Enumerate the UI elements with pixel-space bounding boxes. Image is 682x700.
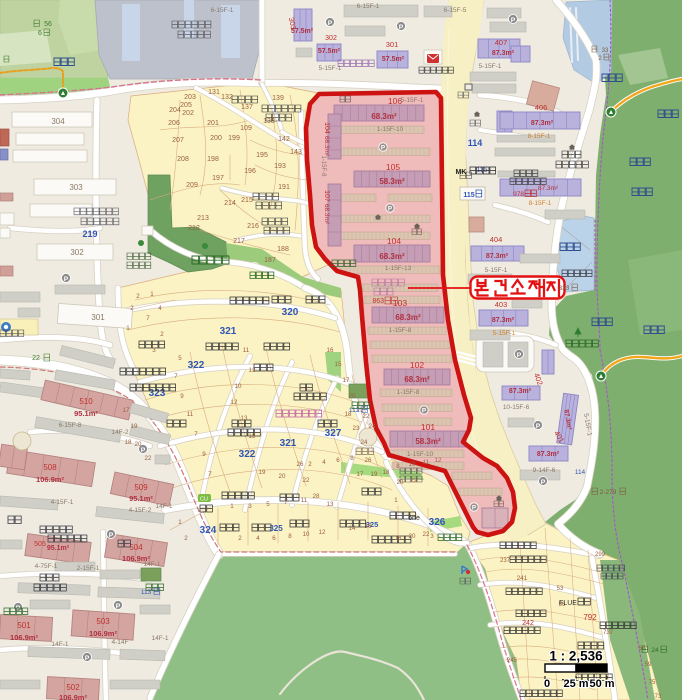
svg-text:324: 324 <box>200 525 217 536</box>
svg-text:87.3m²: 87.3m² <box>486 253 509 260</box>
svg-text:217: 217 <box>233 238 245 245</box>
svg-text:195: 195 <box>256 152 268 159</box>
svg-text:1: 1 <box>178 519 182 526</box>
svg-text:95.1m²: 95.1m² <box>129 494 153 503</box>
svg-text:17: 17 <box>357 471 364 478</box>
svg-text:20: 20 <box>349 393 356 400</box>
svg-text:200: 200 <box>210 135 222 142</box>
svg-text:1: 1 <box>230 503 234 510</box>
svg-text:201: 201 <box>207 120 219 127</box>
svg-text:1-15F-10: 1-15F-10 <box>407 451 434 458</box>
svg-text:7: 7 <box>284 499 288 506</box>
svg-text:322: 322 <box>239 449 256 460</box>
svg-text:106.9m²: 106.9m² <box>10 633 38 642</box>
svg-text:106.9m²: 106.9m² <box>89 629 117 638</box>
svg-text:4: 4 <box>322 459 326 466</box>
svg-text:33: 33 <box>602 48 609 54</box>
svg-text:16: 16 <box>365 523 372 530</box>
svg-text:2-15F-1: 2-15F-1 <box>77 565 100 572</box>
svg-text:26: 26 <box>297 461 304 468</box>
svg-text:one: one <box>408 515 420 522</box>
svg-text:5: 5 <box>266 501 270 508</box>
svg-text:2: 2 <box>184 535 188 542</box>
svg-text:115: 115 <box>463 192 474 199</box>
svg-text:19: 19 <box>131 423 138 430</box>
svg-text:863: 863 <box>372 298 384 305</box>
svg-text:403: 403 <box>495 300 508 309</box>
svg-text:9: 9 <box>180 393 184 400</box>
svg-text:MK: MK <box>456 169 467 176</box>
svg-text:P: P <box>116 603 121 610</box>
svg-text:87.3m²: 87.3m² <box>492 50 515 57</box>
svg-text:8: 8 <box>350 455 354 462</box>
svg-text:209: 209 <box>186 182 198 189</box>
svg-text:137: 137 <box>241 104 253 111</box>
svg-text:102: 102 <box>410 360 424 370</box>
svg-text:18: 18 <box>383 469 390 476</box>
svg-text:15: 15 <box>335 361 342 368</box>
svg-text:510: 510 <box>79 397 93 406</box>
svg-text:2: 2 <box>308 461 312 468</box>
svg-text:191: 191 <box>278 184 290 191</box>
svg-text:197: 197 <box>212 175 224 182</box>
svg-text:301: 301 <box>91 313 105 322</box>
svg-text:19: 19 <box>259 469 266 476</box>
svg-text:333: 333 <box>559 285 570 292</box>
svg-text:P: P <box>472 505 476 512</box>
svg-text:22: 22 <box>32 355 40 362</box>
svg-text:12: 12 <box>435 457 442 464</box>
svg-text:68.3m²: 68.3m² <box>323 204 330 225</box>
svg-text:8-15F-1: 8-15F-1 <box>529 200 552 207</box>
svg-text:213: 213 <box>197 215 209 222</box>
svg-text:P: P <box>399 24 404 31</box>
svg-text:9: 9 <box>202 451 206 458</box>
svg-text:50 m: 50 m <box>589 678 614 690</box>
svg-text:196: 196 <box>244 168 256 175</box>
svg-text:75: 75 <box>649 680 656 686</box>
svg-text:22: 22 <box>423 531 430 538</box>
svg-text:407: 407 <box>495 38 508 47</box>
svg-text:11: 11 <box>187 411 194 418</box>
svg-text:14F-1: 14F-1 <box>52 641 69 648</box>
svg-text:6-15F-5: 6-15F-5 <box>444 7 467 14</box>
svg-text:1-15F-8: 1-15F-8 <box>389 327 412 334</box>
svg-text:25 m: 25 m <box>563 678 588 690</box>
svg-text:214: 214 <box>224 200 236 207</box>
svg-text:P: P <box>141 447 146 454</box>
svg-text:18: 18 <box>395 535 402 542</box>
svg-text:404: 404 <box>490 235 503 244</box>
svg-text:1-15F-10: 1-15F-10 <box>377 126 404 133</box>
svg-text:24: 24 <box>651 647 659 654</box>
svg-text:20: 20 <box>135 441 142 448</box>
svg-text:6-15F-1: 6-15F-1 <box>211 7 234 14</box>
svg-text:P: P <box>541 479 546 486</box>
svg-text:299: 299 <box>595 552 606 558</box>
svg-text:13: 13 <box>249 367 256 374</box>
svg-text:7: 7 <box>146 315 150 322</box>
svg-text:327: 327 <box>325 428 342 439</box>
svg-text:22: 22 <box>363 413 370 420</box>
svg-text:10: 10 <box>235 383 242 390</box>
svg-text:508: 508 <box>43 463 57 472</box>
svg-text:5-15F-1: 5-15F-1 <box>479 63 502 70</box>
svg-text:11: 11 <box>301 497 308 504</box>
svg-text:131: 131 <box>208 89 220 96</box>
svg-text:104: 104 <box>387 236 401 246</box>
svg-text:3: 3 <box>152 347 156 354</box>
svg-text:58.3m²: 58.3m² <box>379 177 405 186</box>
svg-text:737: 737 <box>603 630 614 636</box>
svg-text:P: P <box>328 20 333 27</box>
svg-text:P: P <box>109 532 114 539</box>
svg-text:24: 24 <box>361 439 368 446</box>
svg-text:107: 107 <box>323 190 330 202</box>
svg-text:138: 138 <box>263 118 275 125</box>
svg-text:68.3m²: 68.3m² <box>371 112 397 121</box>
svg-text:188: 188 <box>277 246 289 253</box>
svg-text:501: 501 <box>17 621 31 630</box>
svg-text:95.1m²: 95.1m² <box>47 545 70 552</box>
svg-text:1: 1 <box>394 497 398 504</box>
svg-text:207: 207 <box>172 137 184 144</box>
svg-text:57.5m²: 57.5m² <box>382 56 405 63</box>
svg-text:13: 13 <box>327 501 334 508</box>
svg-text:4-15F-2: 4-15F-2 <box>129 507 152 514</box>
svg-text:68.3m²: 68.3m² <box>404 375 430 384</box>
svg-text:5: 5 <box>178 355 182 362</box>
svg-text:P: P <box>64 276 69 283</box>
svg-text:6: 6 <box>272 535 276 542</box>
svg-text:20: 20 <box>279 473 286 480</box>
svg-text:P: P <box>511 17 516 24</box>
svg-text:12: 12 <box>231 399 238 406</box>
svg-text:4: 4 <box>256 535 260 542</box>
svg-text:4-75F-1: 4-75F-1 <box>35 563 58 570</box>
svg-text:303: 303 <box>69 183 83 192</box>
svg-text:87.3m²: 87.3m² <box>537 451 560 458</box>
svg-text:0: 0 <box>544 678 550 690</box>
svg-text:3: 3 <box>248 503 252 510</box>
svg-text:4-14F: 4-14F <box>112 639 129 646</box>
svg-text:101: 101 <box>421 422 435 432</box>
svg-text:24: 24 <box>369 423 376 430</box>
svg-text:7: 7 <box>174 373 178 380</box>
svg-text:P: P <box>536 423 541 430</box>
svg-text:68.3m²: 68.3m² <box>395 313 421 322</box>
svg-text:5-15F-1: 5-15F-1 <box>493 330 516 337</box>
svg-text:114: 114 <box>468 138 483 148</box>
svg-text:P: P <box>388 206 392 213</box>
svg-text:26: 26 <box>365 457 372 464</box>
svg-text:P: P <box>85 655 90 662</box>
svg-text:20: 20 <box>397 479 404 486</box>
svg-text:978: 978 <box>513 191 524 198</box>
svg-text:205: 205 <box>180 102 192 109</box>
svg-text:502: 502 <box>66 683 80 692</box>
svg-text:14F-1: 14F-1 <box>152 635 169 642</box>
svg-text:509: 509 <box>134 483 148 492</box>
svg-text:19: 19 <box>371 471 378 478</box>
svg-text:1: 1 <box>150 291 154 298</box>
svg-text:2: 2 <box>238 535 242 542</box>
svg-text:301: 301 <box>386 40 399 49</box>
svg-text:10: 10 <box>409 461 416 468</box>
svg-text:4: 4 <box>158 305 162 312</box>
svg-text:106.9m²: 106.9m² <box>59 693 87 700</box>
svg-text:103: 103 <box>393 298 407 308</box>
svg-text:1-15F-8: 1-15F-8 <box>320 155 326 177</box>
svg-text:87.3m²: 87.3m² <box>538 185 559 192</box>
svg-text:106.9m²: 106.9m² <box>36 475 64 484</box>
svg-text:202: 202 <box>182 110 194 117</box>
svg-text:4-15F-1: 4-15F-1 <box>51 499 74 506</box>
svg-text:406: 406 <box>535 103 548 112</box>
svg-text:95.1m²: 95.1m² <box>74 409 98 418</box>
svg-text:22: 22 <box>411 477 418 484</box>
svg-text:17: 17 <box>343 377 350 384</box>
svg-text:2-279: 2-279 <box>600 489 617 496</box>
svg-text:1: 1 <box>126 325 130 332</box>
svg-text:504: 504 <box>129 543 143 552</box>
svg-text:792: 792 <box>583 613 597 622</box>
svg-text:8-15F-1: 8-15F-1 <box>528 133 551 140</box>
svg-text:87.3m²: 87.3m² <box>509 388 532 395</box>
svg-text:14: 14 <box>349 525 356 532</box>
svg-text:1-15F-8: 1-15F-8 <box>397 389 420 396</box>
svg-text:304: 304 <box>51 117 65 126</box>
svg-text:326: 326 <box>429 517 446 528</box>
svg-text:505: 505 <box>34 541 46 548</box>
svg-text:18: 18 <box>125 439 132 446</box>
svg-text:245: 245 <box>507 658 518 664</box>
svg-text:139: 139 <box>272 95 284 102</box>
svg-text:87.3m²: 87.3m² <box>531 120 554 127</box>
svg-text:87.3m²: 87.3m² <box>492 317 515 324</box>
svg-text:6: 6 <box>336 457 340 464</box>
svg-text:113: 113 <box>349 407 360 414</box>
svg-text:302: 302 <box>325 35 337 42</box>
svg-text:114: 114 <box>575 469 586 476</box>
svg-text:219: 219 <box>82 229 97 239</box>
svg-text:132: 132 <box>221 94 233 101</box>
svg-text:11: 11 <box>423 459 430 466</box>
svg-text:23: 23 <box>353 425 360 432</box>
svg-text:193: 193 <box>274 163 286 170</box>
svg-text:10: 10 <box>303 531 310 538</box>
svg-text:302: 302 <box>70 248 84 257</box>
svg-text:6: 6 <box>38 30 42 37</box>
svg-text:208: 208 <box>177 156 189 163</box>
svg-text:14F-1: 14F-1 <box>156 503 173 510</box>
svg-text:104: 104 <box>323 122 330 134</box>
svg-text:321: 321 <box>280 438 297 449</box>
svg-text:5-15F-1: 5-15F-1 <box>319 65 342 72</box>
svg-text:9-14F-6: 9-14F-6 <box>533 467 556 474</box>
svg-text:68.3m²: 68.3m² <box>379 252 405 261</box>
svg-text:28: 28 <box>313 493 320 500</box>
svg-text:58: 58 <box>639 646 646 652</box>
svg-text:325: 325 <box>269 524 283 533</box>
svg-text:187: 187 <box>264 257 276 264</box>
svg-text:16: 16 <box>327 347 334 354</box>
svg-text:22: 22 <box>145 455 152 462</box>
svg-text:11: 11 <box>243 347 250 354</box>
svg-text:20: 20 <box>409 533 416 540</box>
svg-text:57.5m²: 57.5m² <box>318 48 341 55</box>
svg-text:113: 113 <box>141 589 152 596</box>
svg-text:242: 242 <box>522 620 534 627</box>
svg-text:109: 109 <box>240 125 252 132</box>
svg-text:57.5m²: 57.5m² <box>291 28 314 35</box>
svg-text:2: 2 <box>160 331 164 338</box>
svg-text:5-15F-1: 5-15F-1 <box>485 267 508 274</box>
svg-text:237: 237 <box>500 558 511 564</box>
svg-text:2: 2 <box>130 305 134 312</box>
svg-text:12: 12 <box>319 529 326 536</box>
svg-text:320: 320 <box>282 307 299 318</box>
svg-text:206: 206 <box>168 120 180 127</box>
svg-text:198: 198 <box>207 156 219 163</box>
svg-text:142: 142 <box>278 136 290 143</box>
svg-text:105: 105 <box>386 162 400 172</box>
svg-text:7: 7 <box>208 471 212 478</box>
svg-text:56: 56 <box>44 21 52 28</box>
svg-text:215: 215 <box>241 197 253 204</box>
svg-text:73: 73 <box>655 694 662 700</box>
svg-text:22: 22 <box>303 477 310 484</box>
svg-text:FLUE: FLUE <box>559 600 577 607</box>
svg-text:P: P <box>517 352 522 359</box>
svg-text:503: 503 <box>96 617 110 626</box>
svg-text:8: 8 <box>288 533 292 540</box>
svg-text:143: 143 <box>290 149 302 156</box>
svg-text:241: 241 <box>517 575 528 582</box>
svg-text:15: 15 <box>249 433 256 440</box>
svg-text:13: 13 <box>241 415 248 422</box>
svg-text:68.3m²: 68.3m² <box>323 136 330 157</box>
svg-text:212: 212 <box>188 225 200 232</box>
svg-text:58.3m²: 58.3m² <box>415 437 441 446</box>
svg-text:59: 59 <box>645 662 652 668</box>
svg-text:6-15F-1: 6-15F-1 <box>357 3 380 10</box>
svg-text:199: 199 <box>228 135 240 142</box>
svg-text:322: 322 <box>188 360 205 371</box>
svg-text:10-15F-6: 10-15F-6 <box>503 404 530 411</box>
svg-text:CU: CU <box>200 497 208 503</box>
svg-text:P: P <box>422 408 426 415</box>
svg-text:8: 8 <box>396 463 400 470</box>
svg-text:P: P <box>381 145 385 152</box>
svg-text:321: 321 <box>220 326 237 337</box>
svg-text:53: 53 <box>557 586 564 592</box>
svg-text:1-15F-13: 1-15F-13 <box>385 265 412 272</box>
svg-text:7: 7 <box>194 431 198 438</box>
svg-text:5-15F-1: 5-15F-1 <box>401 97 424 104</box>
svg-text:14F-2: 14F-2 <box>112 429 129 436</box>
svg-text:14F-1: 14F-1 <box>144 561 161 568</box>
svg-text:17: 17 <box>123 407 130 414</box>
svg-text:2: 2 <box>136 293 140 300</box>
svg-text:203: 203 <box>184 94 196 101</box>
svg-text:216: 216 <box>247 223 259 230</box>
svg-text:1 : 2,536: 1 : 2,536 <box>549 649 603 664</box>
svg-text:6-15F-8: 6-15F-8 <box>59 422 82 429</box>
